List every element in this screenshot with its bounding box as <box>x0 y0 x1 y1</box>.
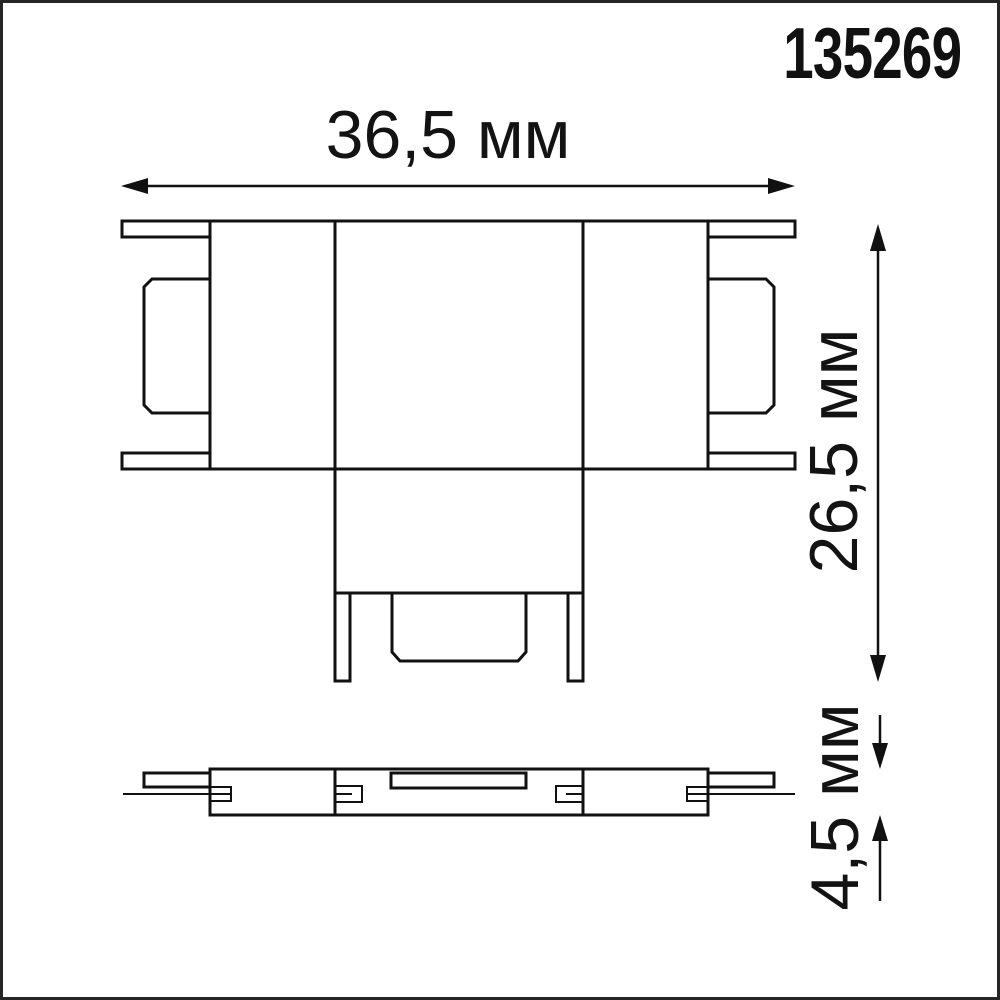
left-plug <box>144 279 210 413</box>
bottom-plug <box>392 593 526 661</box>
side-tab-left <box>144 773 210 787</box>
arrow-down-icon <box>872 743 888 769</box>
thickness-dimension-arrow <box>872 715 888 901</box>
top-view-body <box>210 221 708 469</box>
stem-leg-right <box>568 593 583 681</box>
arrow-up-icon <box>872 815 888 841</box>
side-slot <box>391 773 526 788</box>
technical-drawing <box>3 3 1000 1000</box>
arrow-up-icon <box>870 224 886 251</box>
tab-bottom-right <box>708 453 795 469</box>
tab-bottom-left <box>122 453 210 469</box>
top-view <box>122 221 795 681</box>
width-dimension-arrow <box>121 178 795 194</box>
height-dimension-arrow <box>870 224 886 682</box>
right-plug <box>708 279 774 413</box>
arrow-down-icon <box>870 655 886 682</box>
arrow-left-icon <box>121 178 148 194</box>
arrow-right-icon <box>768 178 795 194</box>
side-tab-right <box>708 773 774 787</box>
tab-top-left <box>122 221 210 237</box>
stem-leg-left <box>335 593 350 681</box>
tab-top-right <box>708 221 795 237</box>
side-view <box>123 769 795 815</box>
drawing-page: 135269 36,5 мм 26,5 мм 4,5 мм <box>0 0 1000 1000</box>
